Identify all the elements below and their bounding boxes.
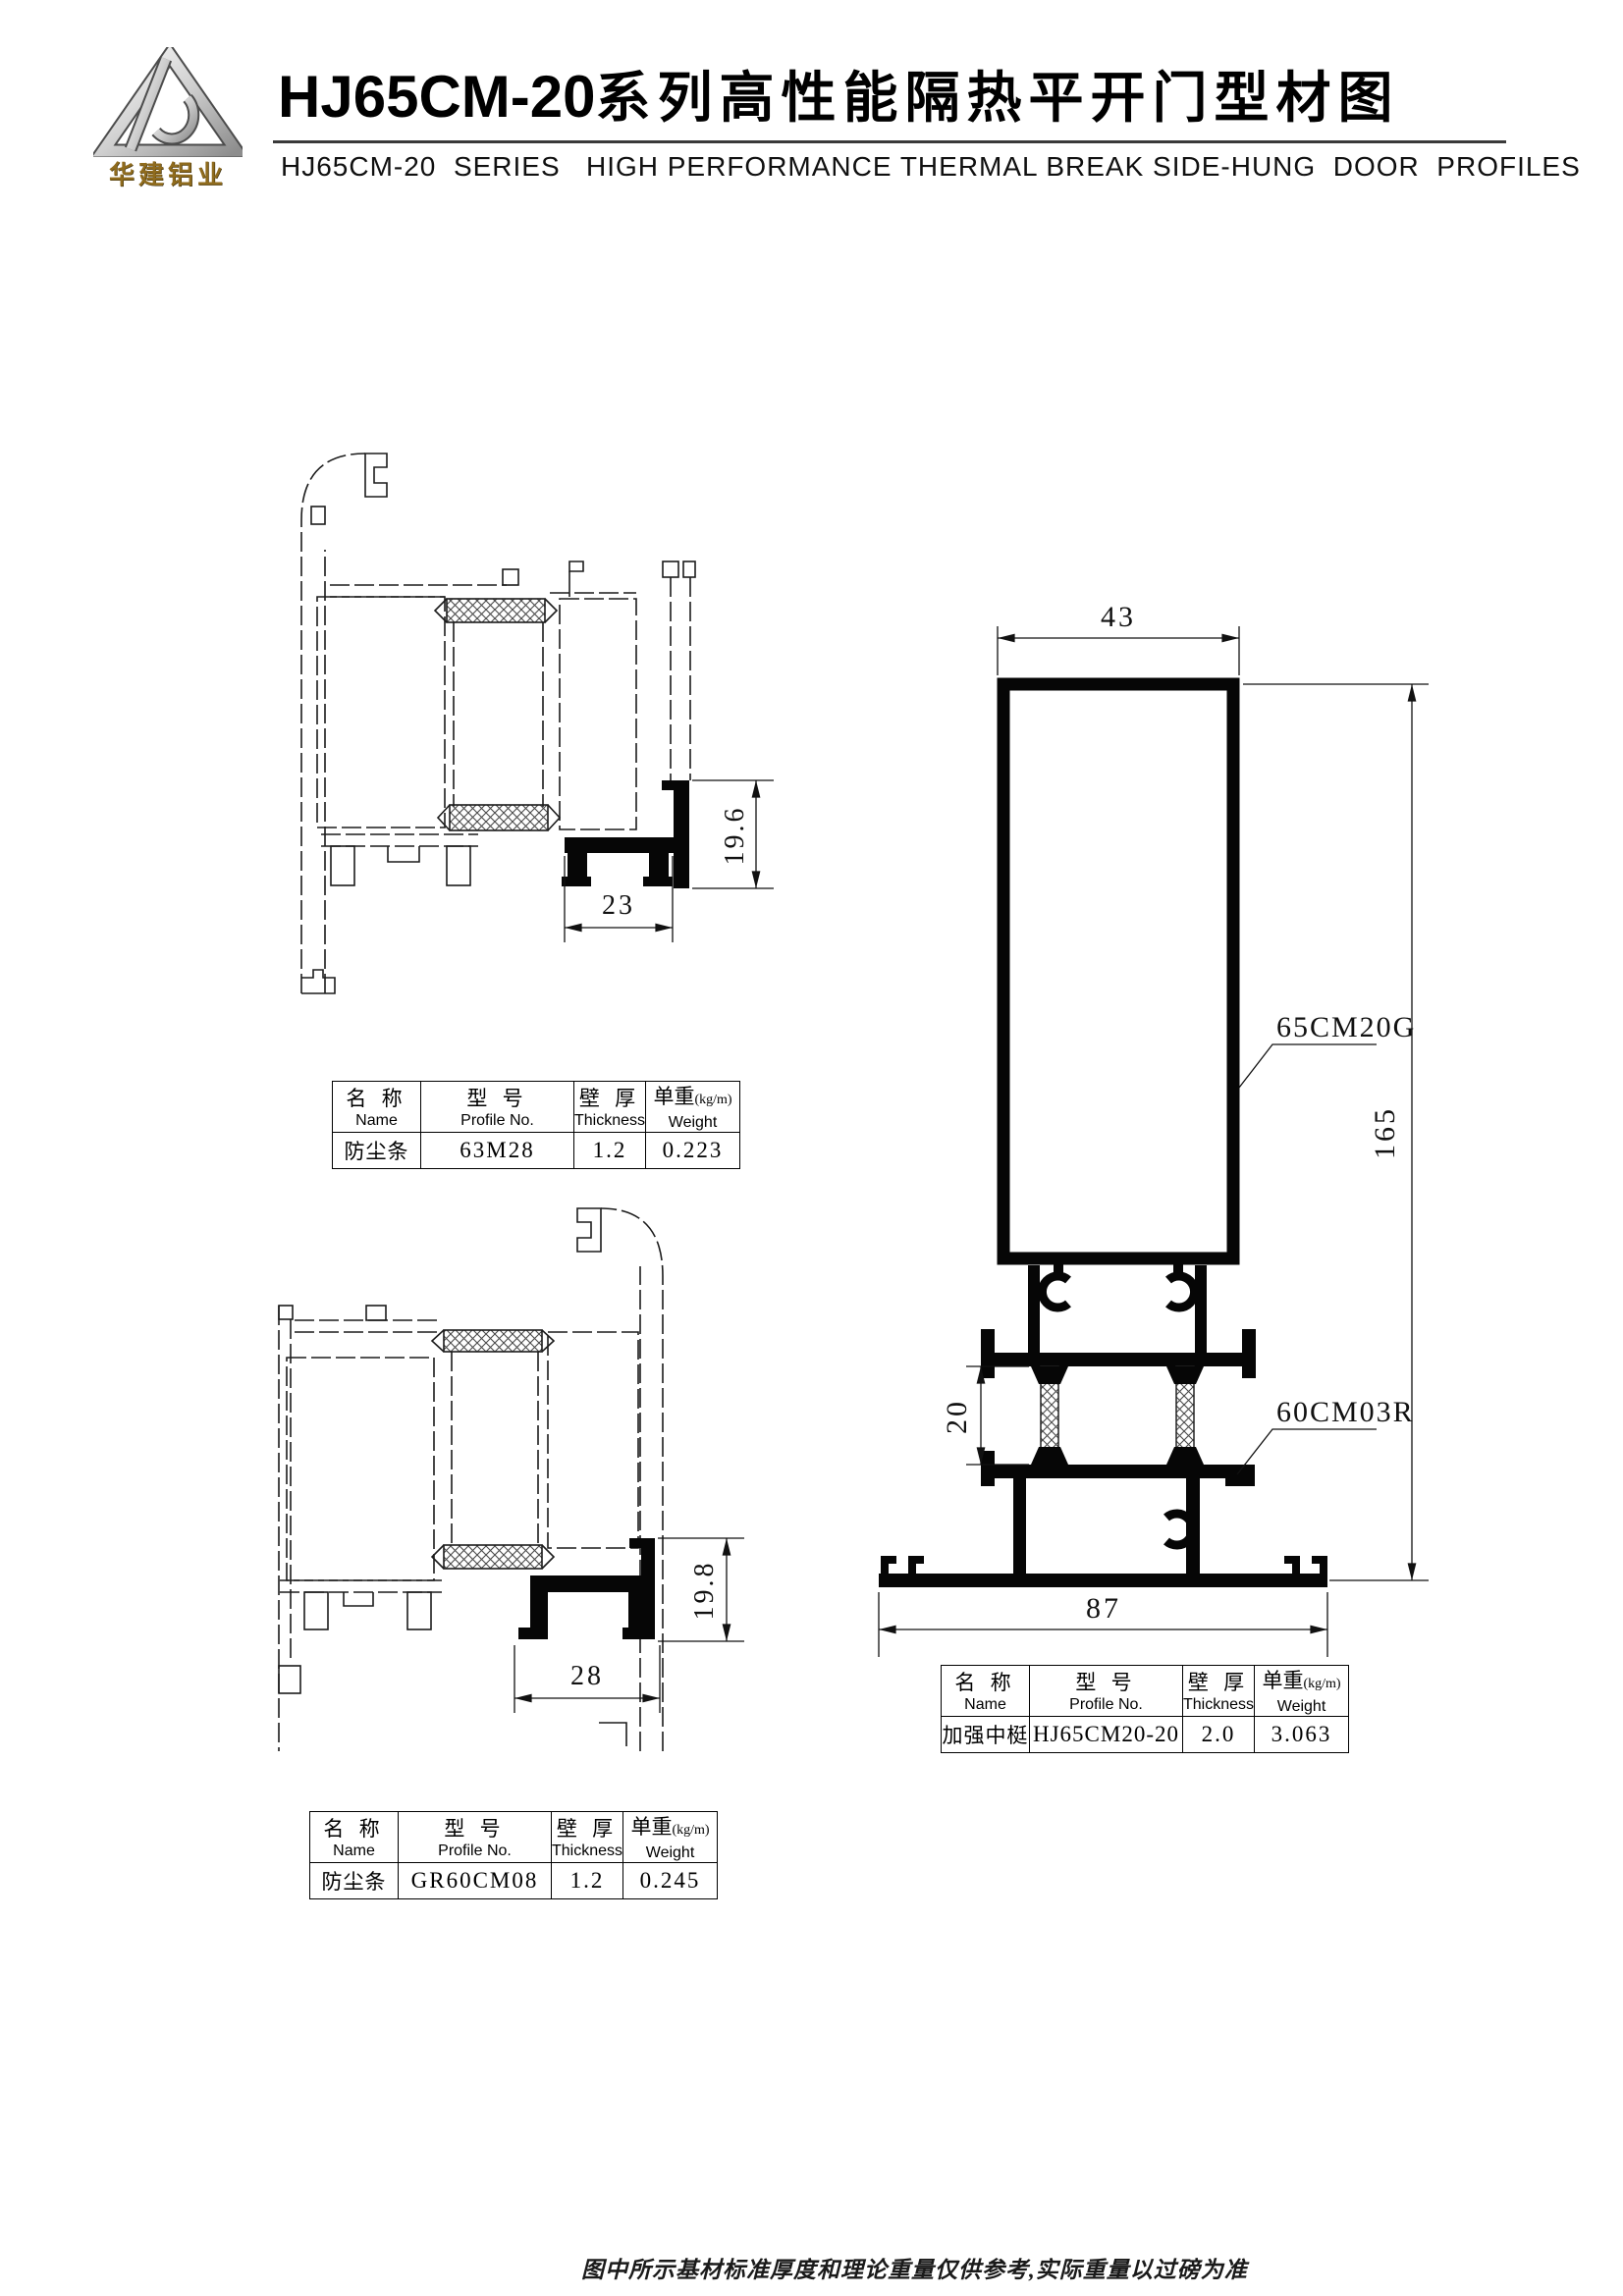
dim-main-thermal-break: 20 <box>941 1399 973 1434</box>
col-header-thickness: 壁 厚 Thickness <box>1183 1666 1255 1717</box>
cell-profile-no: HJ65CM20-20 <box>1030 1717 1183 1753</box>
drawing-sheet: 华建铝业 HJ65CM-20系列高性能隔热平开门型材图 HJ65CM-20 SE… <box>0 0 1623 2296</box>
col-header-profile: 型 号 Profile No. <box>399 1812 552 1863</box>
cell-profile-no: GR60CM08 <box>399 1863 552 1899</box>
dim-top-drawing-height: 19.6 <box>720 806 750 866</box>
header-profile-en: Profile No. <box>421 1111 573 1130</box>
col-header-name: 名 称 Name <box>942 1666 1030 1717</box>
col-header-weight: 单重(kg/m) Weight <box>1255 1666 1349 1717</box>
header-weight-zh: 单重 <box>630 1815 672 1839</box>
cell-part-name: 防尘条 <box>310 1863 399 1899</box>
spec-table-dust-strip-bottom: 名 称 Name 型 号 Profile No. 壁 厚 Thickness 单… <box>309 1811 718 1899</box>
cell-part-name: 防尘条 <box>333 1133 421 1169</box>
dim-bottom-drawing-width: 28 <box>570 1661 604 1691</box>
header-weight-zh: 单重 <box>653 1085 694 1108</box>
header-name-en: Name <box>310 1842 398 1860</box>
header-weight-en: Weight <box>1255 1697 1348 1716</box>
col-header-thickness: 壁 厚 Thickness <box>552 1812 623 1863</box>
col-header-weight: 单重(kg/m) Weight <box>646 1082 740 1133</box>
header-profile-en: Profile No. <box>399 1842 551 1860</box>
cell-thickness: 1.2 <box>552 1863 623 1899</box>
header-profile-zh: 型 号 <box>399 1814 551 1842</box>
footer-disclaimer: 图中所示基材标准厚度和理论重量仅供参考,实际重量以过磅为准 <box>581 2251 1248 2284</box>
header-weight-unit: (kg/m) <box>694 1093 731 1107</box>
dim-main-base-width: 87 <box>1086 1592 1121 1625</box>
spec-table-mullion: 名 称 Name 型 号 Profile No. 壁 厚 Thickness 单… <box>941 1665 1349 1753</box>
col-header-profile: 型 号 Profile No. <box>1030 1666 1183 1717</box>
header-name-zh: 名 称 <box>333 1084 420 1111</box>
label-lower-profile-code: 60CM03R <box>1276 1396 1415 1428</box>
cell-weight: 3.063 <box>1255 1717 1349 1753</box>
header-name-zh: 名 称 <box>942 1668 1029 1695</box>
dim-main-height: 165 <box>1369 1106 1401 1159</box>
cell-part-name: 加强中梃 <box>942 1717 1030 1753</box>
header-weight-en: Weight <box>623 1843 717 1862</box>
header-profile-en: Profile No. <box>1030 1695 1182 1714</box>
header-name-en: Name <box>942 1695 1029 1714</box>
header-name-zh: 名 称 <box>310 1814 398 1842</box>
header-thickness-zh: 壁 厚 <box>1183 1668 1254 1695</box>
section-drawing-top: 19.6 23 <box>301 454 774 993</box>
header-thickness-zh: 壁 厚 <box>574 1084 645 1111</box>
section-drawing-bottom: 19.8 28 <box>279 1208 744 1751</box>
col-header-thickness: 壁 厚 Thickness <box>574 1082 646 1133</box>
header-profile-zh: 型 号 <box>1030 1668 1182 1695</box>
col-header-name: 名 称 Name <box>333 1082 421 1133</box>
dust-strip-profile-top <box>562 780 689 888</box>
header-weight-zh: 单重 <box>1262 1669 1303 1692</box>
mullion-profile-drawing: 43 165 20 87 65CM20G 60CM03R <box>879 601 1429 1657</box>
table-row: 防尘条 GR60CM08 1.2 0.245 <box>310 1863 718 1899</box>
label-upper-profile-code: 65CM20G <box>1276 1011 1416 1043</box>
profile-drawings: 19.6 23 <box>0 0 1623 2296</box>
header-name-en: Name <box>333 1111 420 1130</box>
dim-top-drawing-width: 23 <box>602 890 635 921</box>
table-row: 加强中梃 HJ65CM20-20 2.0 3.063 <box>942 1717 1349 1753</box>
dim-bottom-drawing-height: 19.8 <box>689 1561 720 1621</box>
col-header-weight: 单重(kg/m) Weight <box>623 1812 718 1863</box>
header-weight-en: Weight <box>646 1113 739 1132</box>
col-header-name: 名 称 Name <box>310 1812 399 1863</box>
cell-weight: 0.223 <box>646 1133 740 1169</box>
table-row: 防尘条 63M28 1.2 0.223 <box>333 1133 740 1169</box>
header-thickness-zh: 壁 厚 <box>552 1814 622 1842</box>
header-thickness-en: Thickness <box>1183 1695 1254 1714</box>
header-thickness-en: Thickness <box>552 1842 622 1860</box>
dim-main-top-width: 43 <box>1101 601 1136 633</box>
cell-profile-no: 63M28 <box>421 1133 574 1169</box>
header-weight-unit: (kg/m) <box>1303 1677 1340 1691</box>
cell-thickness: 2.0 <box>1183 1717 1255 1753</box>
cell-weight: 0.245 <box>623 1863 718 1899</box>
header-thickness-en: Thickness <box>574 1111 645 1130</box>
header-profile-zh: 型 号 <box>421 1084 573 1111</box>
spec-table-dust-strip-top: 名 称 Name 型 号 Profile No. 壁 厚 Thickness 单… <box>332 1081 740 1169</box>
cell-thickness: 1.2 <box>574 1133 646 1169</box>
col-header-profile: 型 号 Profile No. <box>421 1082 574 1133</box>
header-weight-unit: (kg/m) <box>672 1823 709 1838</box>
